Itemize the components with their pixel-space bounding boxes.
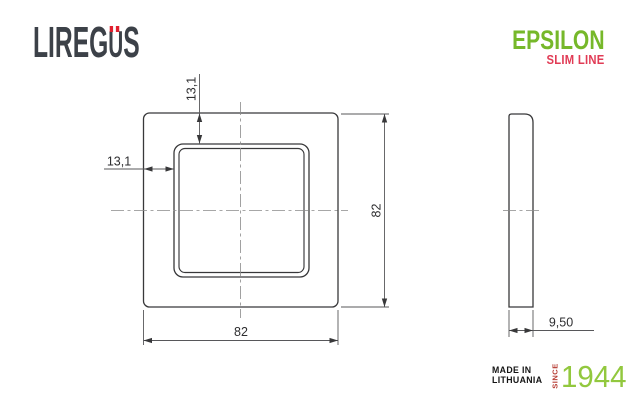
dimension-label-height: 82 [370, 204, 384, 218]
made-in-line2: LITHUANIA [492, 376, 542, 386]
dimension-label-thickness: 9,50 [549, 316, 573, 330]
year-1944: 1944 [561, 361, 627, 392]
since-label: SINCE [550, 363, 559, 388]
since-label-wrap: SINCE [549, 363, 561, 389]
dimension-label-inset-left: 13,1 [107, 155, 131, 169]
technical-drawing: 13,1 13,1 82 82 [0, 0, 630, 420]
dimension-label-inset-top: 13,1 [185, 77, 199, 101]
arrow-right-icon [330, 338, 339, 343]
arrow-down-icon [382, 299, 387, 308]
page: LIREGUS EPSILON SLIM LINE 13,1 13,1 [0, 0, 630, 420]
dimension-height: 82 [341, 114, 389, 307]
dimension-thickness: 9,50 [509, 310, 594, 337]
arrow-right-icon [525, 328, 534, 333]
front-view [111, 102, 348, 318]
dimension-label-width: 82 [234, 325, 248, 339]
arrow-left-icon [509, 328, 518, 333]
arrow-up-icon [382, 114, 387, 123]
arrow-left-icon [144, 338, 153, 343]
side-view [503, 114, 539, 307]
made-in-lithuania-logo: MADE IN LITHUANIA SINCE 1944 [492, 362, 630, 390]
made-in-text: MADE IN LITHUANIA [492, 366, 542, 386]
